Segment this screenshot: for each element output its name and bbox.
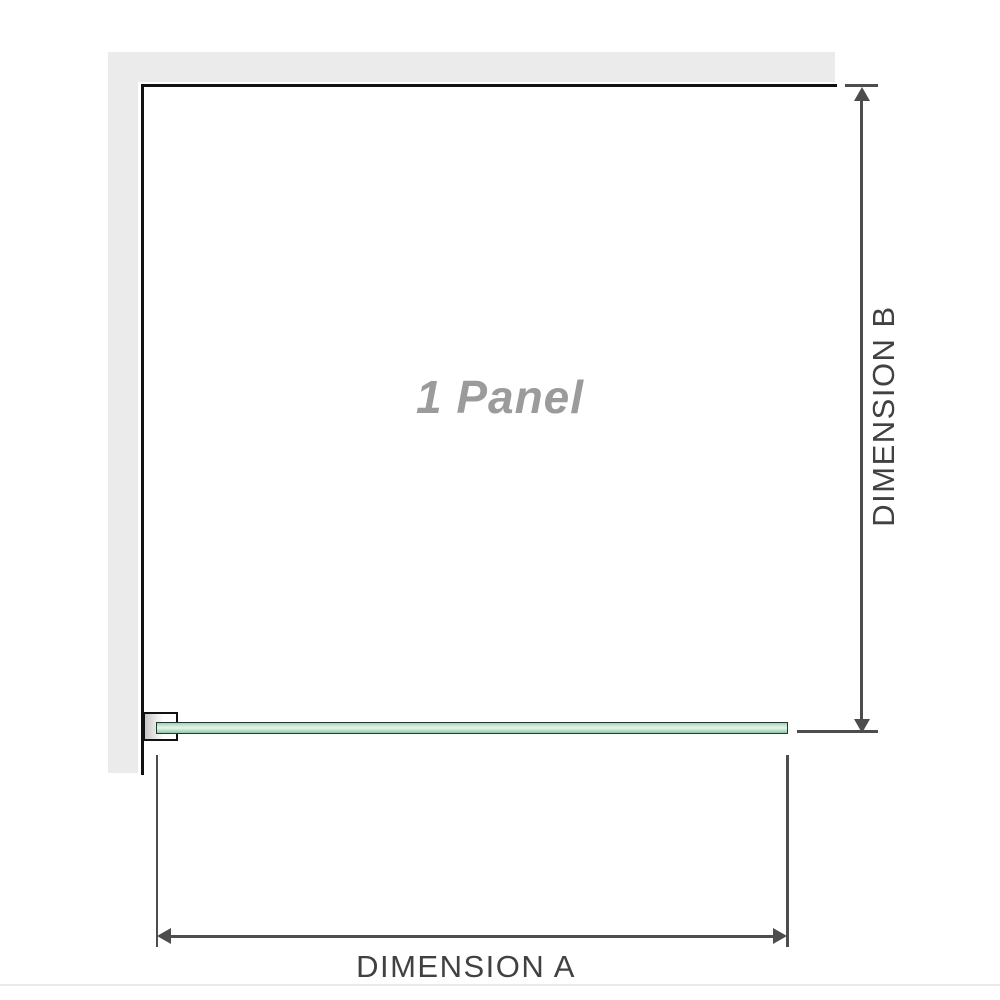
wall-top (108, 52, 835, 82)
dimension-a-arrow-left-icon (157, 928, 171, 944)
dimension-b-arrow-up-icon (854, 87, 870, 101)
dimension-b-label: DIMENSION B (869, 291, 899, 541)
wall-edge-left (141, 84, 144, 775)
shower-panel-diagram: DIMENSION B DIMENSION A 1 Panel (0, 0, 1000, 1000)
bottom-divider (0, 984, 1000, 986)
dimension-a-arrow-right-icon (773, 928, 787, 944)
wall-left (108, 52, 138, 773)
dimension-a-extension-left (156, 755, 159, 947)
dimension-a-extension-right (786, 755, 789, 947)
dimension-a-label: DIMENSION A (341, 950, 591, 984)
wall-edge-top (141, 84, 837, 87)
dimension-b-line (860, 95, 863, 722)
dimension-b-arrow-down-icon (854, 719, 870, 733)
panel-count-label: 1 Panel (340, 369, 660, 425)
glass-panel (156, 722, 788, 734)
dimension-a-line (168, 935, 776, 938)
